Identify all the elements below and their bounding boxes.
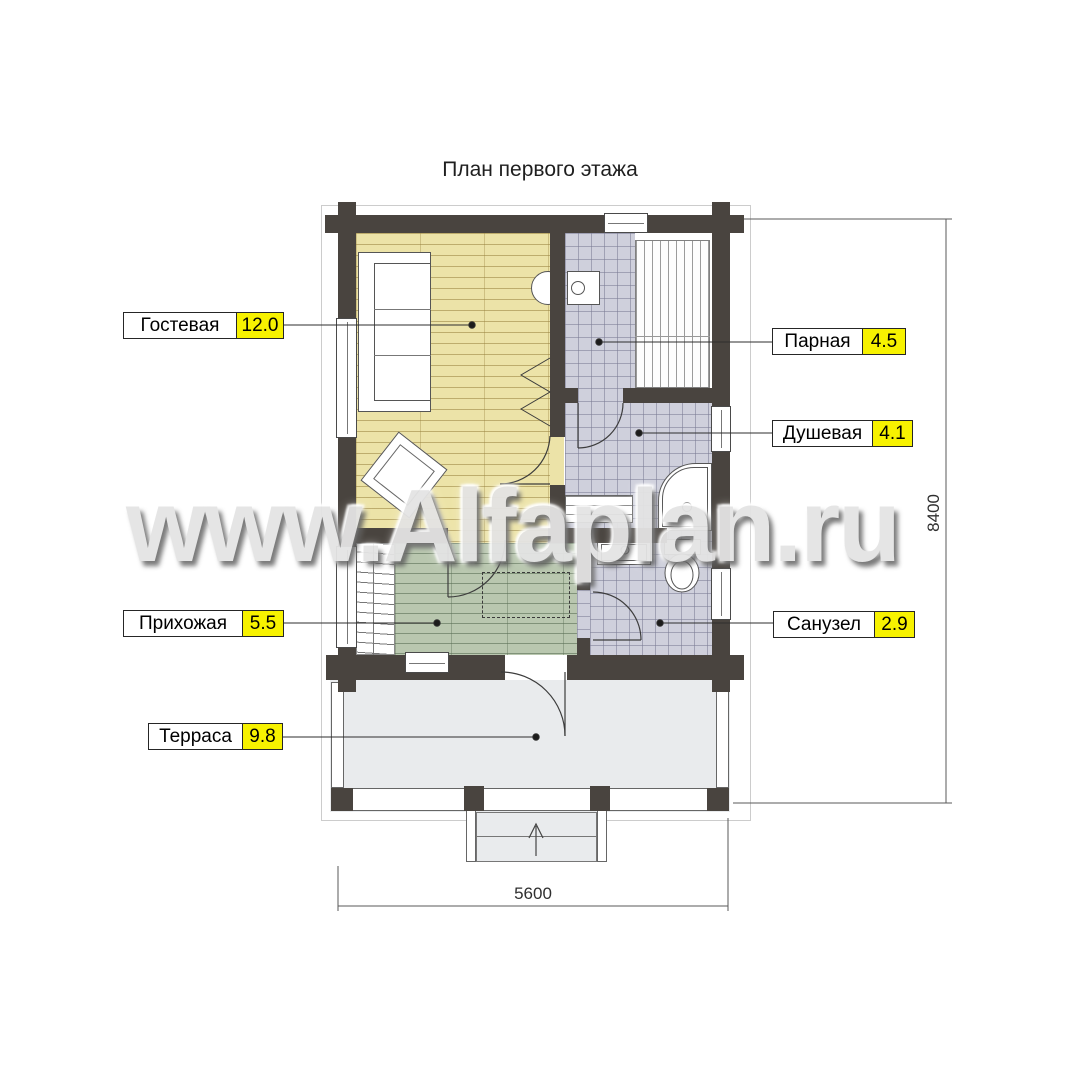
room-label-terrace: Терраса 9.8 [148, 723, 283, 750]
room-label-guest: Гостевая 12.0 [123, 312, 284, 339]
room-label-steam: Парная 4.5 [772, 328, 906, 355]
page-title: План первого этажа [0, 158, 1080, 182]
leader-dot [469, 322, 475, 328]
dimension-width: 5600 [483, 884, 583, 904]
dimension-height: 8400 [924, 494, 944, 532]
room-name: Парная [772, 328, 863, 355]
room-area-badge: 9.8 [243, 723, 283, 750]
leader-dot [533, 734, 539, 740]
leader-dot [636, 430, 642, 436]
room-label-shower: Душевая 4.1 [772, 420, 913, 447]
room-label-hallway: Прихожая 5.5 [123, 610, 284, 637]
floor-plan-image: План первого этажа [0, 0, 1080, 1080]
room-name: Душевая [772, 420, 873, 447]
leader-dot [596, 339, 602, 345]
leader-dot [434, 620, 440, 626]
wall-break-zigzag [521, 358, 550, 426]
watermark-text: www.Alfaplan.ru [126, 472, 899, 580]
room-area-badge: 4.1 [873, 420, 913, 447]
room-area-badge: 12.0 [237, 312, 284, 339]
room-name: Гостевая [123, 312, 237, 339]
room-area-badge: 2.9 [875, 611, 915, 638]
door-swing-arc [578, 403, 623, 448]
door-swing-arc [593, 592, 641, 640]
door-swing-arc [501, 672, 565, 736]
room-area-badge: 4.5 [863, 328, 906, 355]
room-name: Терраса [148, 723, 243, 750]
leader-dot [657, 620, 663, 626]
room-area-badge: 5.5 [243, 610, 284, 637]
room-name: Прихожая [123, 610, 243, 637]
room-label-bathroom: Санузел 2.9 [773, 611, 915, 638]
room-name: Санузел [773, 611, 875, 638]
